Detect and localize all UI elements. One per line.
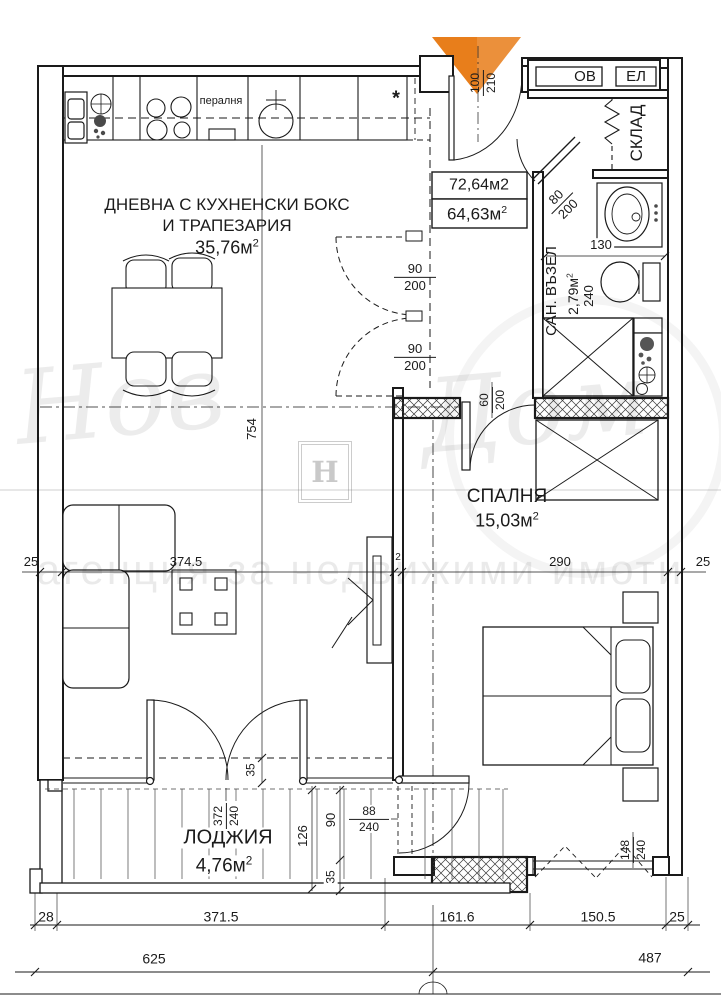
living-door-top-dim: 90200 [394, 262, 436, 292]
net-area-value: 64,63м2 [447, 205, 507, 224]
kitchen-note-symbol: * [392, 89, 400, 110]
dim-width: 148 [619, 840, 632, 860]
dim-width: 90 [408, 342, 422, 356]
dim-height: 240 [635, 840, 648, 860]
storage-name: СКЛАД [628, 105, 646, 162]
dim-bottom-487: 487 [638, 951, 661, 966]
dim-height: 200 [404, 359, 426, 373]
dim-living-width: 374.5 [170, 555, 203, 569]
living-door-bottom-dim: 90200 [394, 342, 436, 372]
bathroom-width-dim: 130 [588, 238, 614, 252]
bathroom-name: САН. ВЪЗЕЛ [544, 246, 560, 336]
dim-bottom-28: 28 [38, 910, 54, 925]
loggia-area: 4,76м2 [194, 855, 255, 876]
dim-bottom-625: 625 [142, 952, 165, 967]
bathroom-door-dim: 80200 [541, 182, 584, 225]
dim-loggia-seg1: 90 [324, 811, 338, 829]
dim-width: 100 [469, 73, 482, 93]
dim-width: 88 [362, 805, 375, 818]
bedroom-name: СПАЛНЯ [467, 487, 547, 507]
bathroom-area: 2,79м2 [565, 273, 580, 315]
bedroom-door-dim: 60200 [478, 387, 506, 413]
dim-bottom-161-6: 161.6 [439, 910, 474, 925]
dim-loggia-depth: 126 [296, 823, 310, 849]
living-room-name-line1: ДНЕВНА С КУХНЕНСКИ БОКС [104, 196, 349, 214]
dim-loggia-seg2: 35 [325, 868, 338, 885]
dim-partition: 2 [395, 553, 401, 564]
shaft-label-electrical: ЕЛ [626, 69, 646, 85]
dim-bottom-25: 25 [669, 910, 685, 925]
washer-label: пералня [200, 96, 243, 108]
dim-width: 60 [478, 393, 491, 406]
dim-height: 240 [359, 821, 379, 834]
dim-height: 200 [494, 390, 507, 410]
dim-bottom-150-5: 150.5 [580, 910, 615, 925]
total-area-value: 72,64м2 [449, 178, 509, 195]
labels-layer: ДНЕВНА С КУХНЕНСКИ БОКС И ТРАПЕЗАРИЯ 35,… [0, 0, 721, 1000]
bedroom-window-dim: 148240 [619, 837, 647, 863]
dim-bottom-371-5: 371.5 [203, 910, 238, 925]
loggia-door-dim: 88240 [347, 805, 391, 833]
living-room-name-line2: И ТРАПЕЗАРИЯ [162, 217, 291, 235]
entrance-door-dim: 100210 [469, 70, 497, 96]
dim-wall-left: 25 [24, 555, 38, 569]
dim-height: 240 [228, 806, 241, 826]
loggia-window-dim: 372240 [212, 801, 240, 831]
dim-wall-right: 25 [696, 555, 710, 569]
floor-plan: ДНЕВНА С КУХНЕНСКИ БОКС И ТРАПЕЗАРИЯ 35,… [0, 0, 721, 1000]
dim-width: 90 [408, 262, 422, 276]
dim-height: 210 [485, 73, 498, 93]
bathroom-depth-dim: 240 [582, 285, 596, 307]
bedroom-area: 15,03м2 [475, 512, 539, 531]
dim-bedroom-width: 290 [549, 555, 571, 569]
dim-width: 372 [212, 806, 225, 826]
living-room-area: 35,76м2 [195, 239, 259, 258]
dim-living-height: 754 [245, 418, 259, 440]
dim-loggia-offset: 35 [245, 763, 258, 776]
shaft-label-heating: ОВ [574, 69, 596, 85]
dim-height: 200 [404, 279, 426, 293]
